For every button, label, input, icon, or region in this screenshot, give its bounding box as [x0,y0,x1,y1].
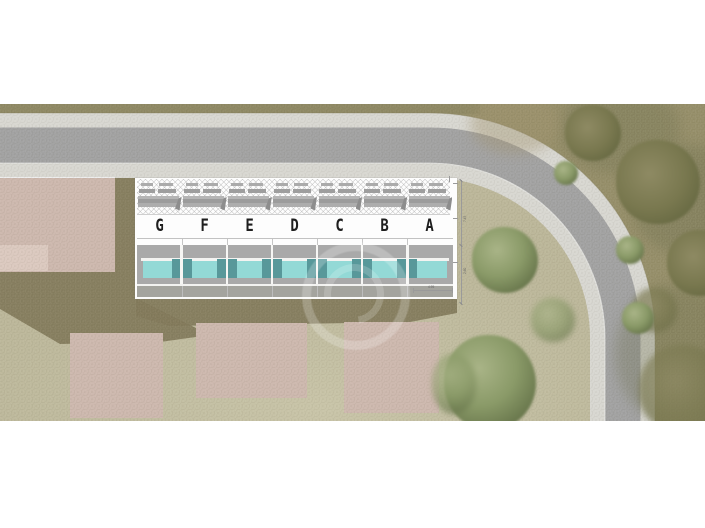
unit-label: F [186,215,223,239]
carport-roof [319,196,360,208]
vertical-dimension-label-a: 7.45 [463,216,467,222]
unit-label: G [141,215,178,239]
terrace-divider-wall [180,245,183,285]
site-plan-page: GFEDCBA 7.45 2.60 4.95 [0,0,705,528]
carport-roof [138,196,179,208]
pergola-slat [231,183,243,186]
bush [616,236,644,264]
unit-F: F [182,178,227,299]
pergola-slat [204,183,218,186]
block-edge-tick [453,183,458,184]
pergola-slat [186,183,198,186]
pergola-slat [321,183,333,186]
pergola-slat [384,183,398,186]
pergola-slat [409,189,425,193]
pergola-slat [158,189,176,193]
building-footprint-bottom-1 [70,333,163,418]
vertical-dimension-label-b: 2.60 [463,268,467,274]
unit-label: A [411,215,448,239]
bush [622,302,654,334]
building-footprint-left-annex [0,245,48,271]
tree [565,105,621,161]
unit-E: E [227,178,272,299]
terrace-divider-wall [226,245,229,285]
pergola-slat [339,183,353,186]
carport-roof [228,196,269,208]
pergola-slat [159,183,173,186]
tree [472,227,538,293]
pergola-slat [184,189,200,193]
pergola-slat [429,183,443,186]
pergola-slat [249,183,263,186]
carport-roof [273,196,314,208]
unit-label: C [321,215,358,239]
pergola-slat [366,183,378,186]
pergola-slat [276,183,288,186]
carport-roof [409,196,450,208]
horizontal-dimension-label: 4.95 [428,285,434,289]
unit-label: E [231,215,268,239]
pergola-slat [338,189,356,193]
pergola-slat [293,189,311,193]
dimension-end-tick [452,288,453,293]
block-corner-tick [449,176,450,182]
carport-roof [364,196,405,208]
boundary-line [227,239,228,246]
unit-label: D [276,215,313,239]
boundary-line [317,239,318,246]
unit-G: G [137,178,182,299]
boundary-line [272,239,273,246]
boundary-line [227,286,228,297]
pergola-slat [411,183,423,186]
bush [531,298,575,342]
pergola-slat [319,189,335,193]
carport-roof [183,196,224,208]
vertical-dimension-line [461,180,462,304]
townhouse-block: GFEDCBA [135,178,457,299]
unit-A: A [407,178,452,299]
tree [616,140,700,224]
building-footprint-bottom-2 [196,323,307,398]
horizontal-dimension-line [413,290,453,291]
pergola-slat [274,189,290,193]
boundary-line [182,286,183,297]
terrace-divider-wall [271,245,274,285]
dimension-end-tick [413,288,414,293]
boundary-line [272,286,273,297]
tree-shadow [432,354,476,414]
pergola-slat [229,189,245,193]
pergola-slat [141,183,153,186]
boundary-line [407,239,408,246]
unit-label: B [366,215,403,239]
bush [554,161,578,185]
pergola-slat [383,189,401,193]
pergola-slat [428,189,446,193]
pergola-slat [248,189,266,193]
pergola-slat [203,189,221,193]
boundary-line [182,239,183,246]
pergola-slat [364,189,380,193]
site-plan-render: GFEDCBA 7.45 2.60 4.95 [0,104,705,421]
block-edge-tick [453,262,458,263]
block-edge-tick [453,218,458,219]
pergola-slat [294,183,308,186]
pergola-slat [139,189,155,193]
